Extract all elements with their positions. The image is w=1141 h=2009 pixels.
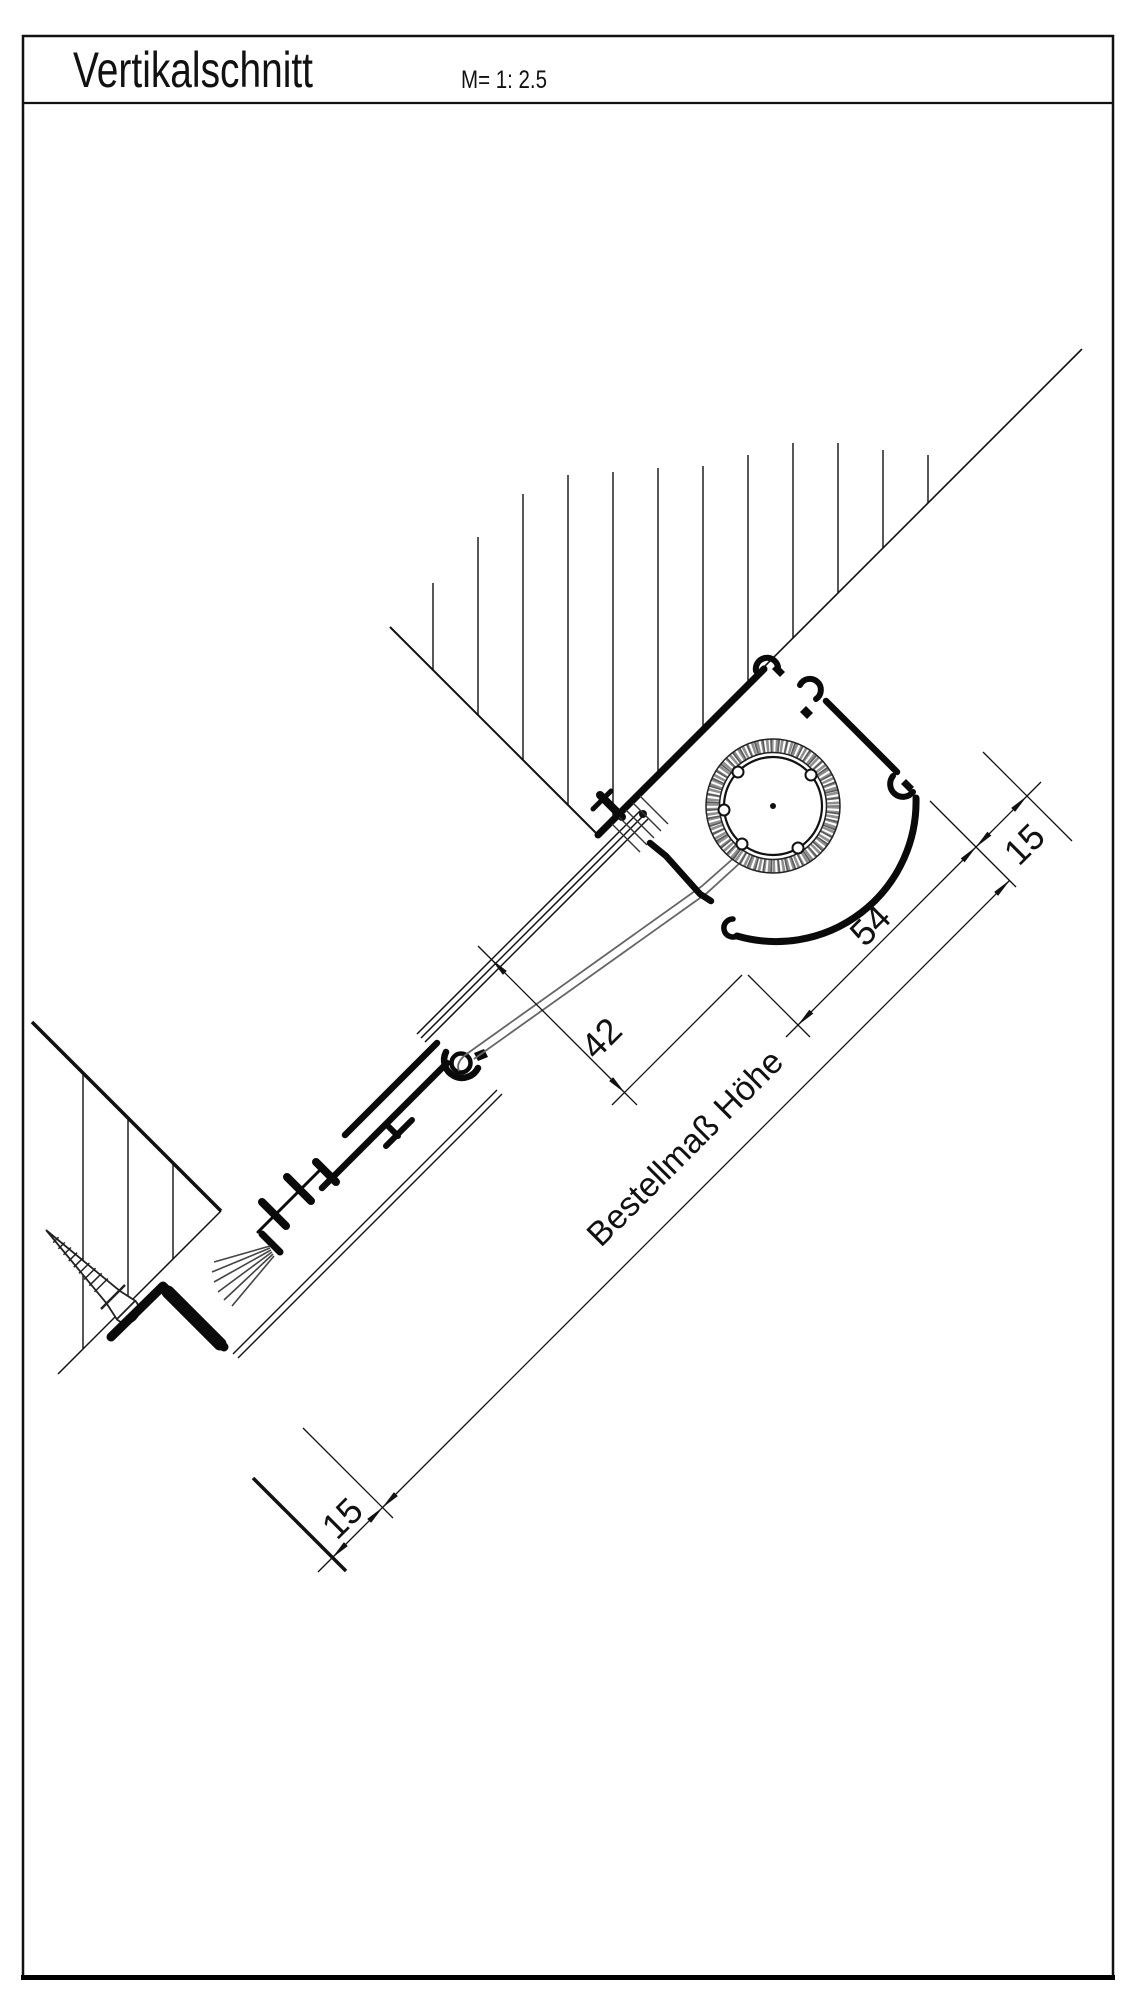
dim-label-15-bottom: 15 (314, 1490, 371, 1547)
housing-upper-right-face (826, 701, 897, 772)
dim-label-54: 54 (842, 897, 899, 954)
ext-line-housing-bottom (748, 975, 810, 1037)
dim-label-42: 42 (573, 1010, 630, 1067)
roof-opening-edge (390, 627, 597, 834)
drum-axis-point (770, 803, 776, 809)
wall-surface-edge (32, 1022, 221, 1211)
technical-drawing: Vertikalschnitt M= 1: 2.5 (0, 0, 1141, 2009)
scale-label: M= 1: 2.5 (461, 66, 547, 94)
roller-drum (706, 739, 840, 873)
drawing-sheet: Vertikalschnitt M= 1: 2.5 (0, 0, 1141, 2009)
brush-holder (262, 1234, 280, 1252)
dim-label-order-height: Bestellmaß Höhe (580, 1043, 791, 1254)
sheet-frame (21, 36, 1115, 1978)
housing-snap-hook-2 (800, 679, 821, 699)
cord-channel-boss (452, 1054, 471, 1073)
bottom-frame-profile (111, 1043, 502, 1358)
housing-slot-inner-lip (650, 843, 711, 901)
brush-seal-top (612, 796, 668, 852)
dim-label-15-top: 15 (996, 816, 1053, 873)
page-title: Vertikalschnitt (73, 42, 313, 98)
housing-slot-outer-lip (724, 919, 737, 937)
brush-seal-bottom (212, 1246, 274, 1306)
mounting-screw (46, 1230, 139, 1323)
